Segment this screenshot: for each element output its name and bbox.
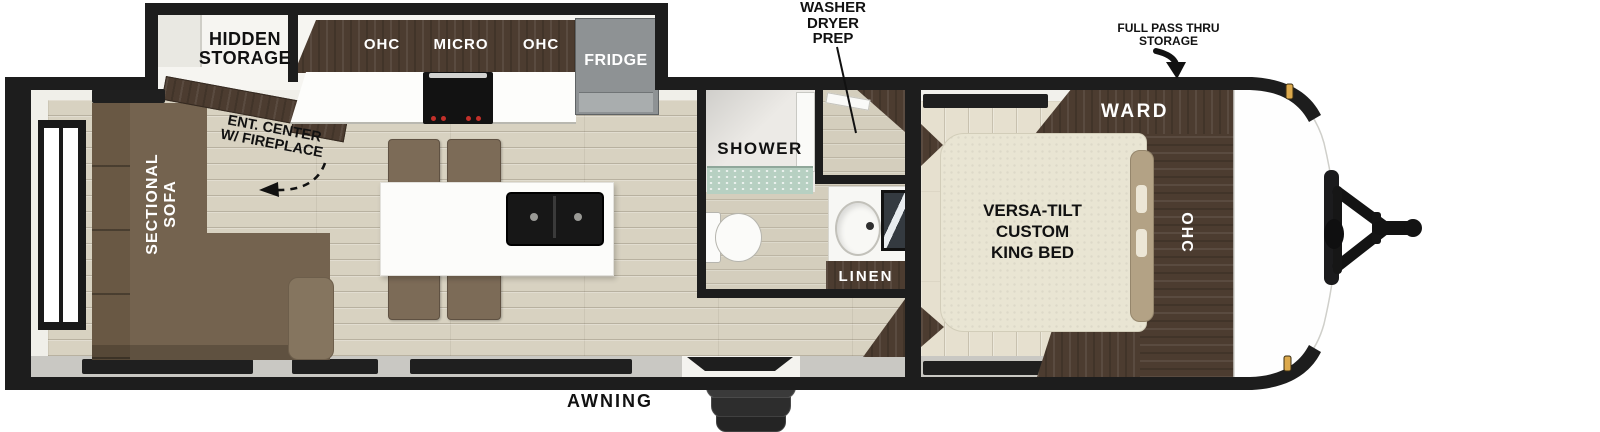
clearance-light-bottom <box>1284 356 1291 371</box>
hitch-coupler-ball <box>1404 219 1422 237</box>
full-pass-thru-arrowhead <box>1166 62 1186 79</box>
hitch-jack-wheel <box>1324 219 1344 249</box>
washer-dryer-prep-label: WASHER DRYER PREP <box>788 0 878 47</box>
fireplace-dashed-arrow <box>276 163 325 190</box>
washer-dryer-pointer-line <box>837 47 856 133</box>
overlay-graphics <box>0 0 1600 432</box>
full-pass-thru-storage-label: FULL PASS THRU STORAGE <box>1106 22 1231 47</box>
awning-label: AWNING <box>545 391 675 412</box>
rv-floorplan-diagram: SECTIONAL SOFA OHC MICRO OHC FRIDGE <box>0 0 1600 432</box>
clearance-light-top <box>1286 84 1293 99</box>
fireplace-arrowhead <box>259 182 279 197</box>
nose-cap <box>1234 78 1336 389</box>
